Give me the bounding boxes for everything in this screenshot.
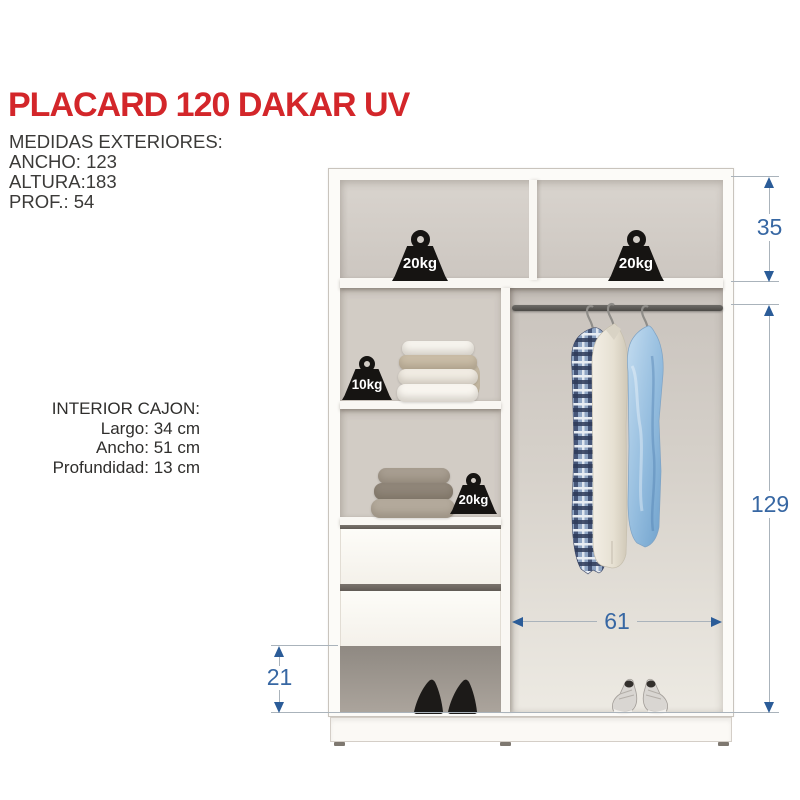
dim-21-label: 21 — [264, 664, 295, 690]
dim-129-arrow-down — [764, 702, 774, 713]
towel-stack — [398, 369, 478, 385]
wardrobe-foot-right — [718, 742, 729, 746]
exterior-measures-heading: MEDIDAS EXTERIORES: — [9, 132, 223, 152]
towel-stack — [399, 355, 477, 370]
folded-clothes-stack — [371, 499, 455, 518]
weight-20kg-top-left-icon: 20kg — [392, 230, 448, 281]
wardrobe-foot-left — [334, 742, 345, 746]
top-divider-panel — [529, 180, 537, 280]
weight-label: 20kg — [459, 492, 489, 507]
exterior-measures-block: MEDIDAS EXTERIORES: ANCHO: 123 ALTURA:18… — [9, 132, 223, 212]
dim-61-arrow-left — [512, 617, 523, 627]
dim-35-label: 35 — [749, 214, 790, 240]
wardrobe-plinth — [330, 717, 732, 742]
dim-bottom-ext-line — [271, 712, 779, 713]
dim-61-line — [523, 621, 597, 622]
dim-129-arrow-up — [764, 305, 774, 316]
exterior-altura-value: ALTURA:183 — [9, 172, 223, 192]
folded-clothes-stack — [374, 483, 453, 500]
placard-product-diagram: PLACARD 120 DAKAR UV MEDIDAS EXTERIORES:… — [0, 0, 800, 800]
hanger-hooks-icon — [587, 304, 648, 330]
drawer-front-1 — [340, 529, 501, 584]
beige-coat — [592, 324, 628, 568]
drawer-front-2 — [340, 591, 501, 646]
wardrobe-foot-middle — [500, 742, 511, 746]
dim-61-line — [637, 621, 711, 622]
left-shelf-upper — [340, 401, 501, 409]
hanging-clothes-group — [546, 296, 698, 584]
towel-stack — [402, 341, 474, 356]
exterior-ancho-value: ANCHO: 123 — [9, 152, 223, 172]
weight-label: 20kg — [619, 255, 653, 272]
sneakers — [608, 674, 672, 716]
dim-35-line — [769, 188, 770, 214]
dim-129-label: 129 — [746, 491, 794, 517]
folded-clothes-stack — [378, 468, 450, 484]
interior-cajon-block: INTERIOR CAJON: Largo: 34 cm Ancho: 51 c… — [8, 399, 200, 477]
weight-20kg-top-right-icon: 20kg — [608, 230, 664, 281]
blue-garment — [627, 326, 663, 547]
weight-10kg-icon: 10kg — [342, 356, 392, 400]
weight-20kg-shelf-icon: 20kg — [450, 473, 497, 514]
left-shelf-lower — [340, 517, 501, 525]
cajon-profundidad-value: Profundidad: 13 cm — [8, 458, 200, 478]
dim-35-arrow-up — [764, 177, 774, 188]
exterior-prof-value: PROF.: 54 — [9, 192, 223, 212]
dim-129-line — [769, 518, 770, 702]
dim-35-line — [769, 241, 770, 271]
towel-stack — [397, 384, 478, 402]
dim-35-arrow-down — [764, 271, 774, 282]
cajon-ancho-value: Ancho: 51 cm — [8, 438, 200, 458]
weight-label: 10kg — [352, 377, 383, 392]
dim-21-arrow-down — [274, 702, 284, 713]
weight-label: 20kg — [403, 255, 437, 272]
page-title: PLACARD 120 DAKAR UV — [8, 86, 409, 125]
black-shoes — [408, 678, 486, 714]
dim-21-line — [279, 690, 280, 702]
dim-61-label: 61 — [597, 608, 637, 634]
cajon-largo-value: Largo: 34 cm — [8, 419, 200, 439]
dim-61-arrow-right — [711, 617, 722, 627]
drawer-gap-middle — [340, 584, 501, 591]
dim-129-line — [769, 316, 770, 491]
dim-21-arrow-up — [274, 646, 284, 657]
interior-cajon-heading: INTERIOR CAJON: — [8, 399, 200, 419]
column-divider-panel — [501, 288, 510, 712]
